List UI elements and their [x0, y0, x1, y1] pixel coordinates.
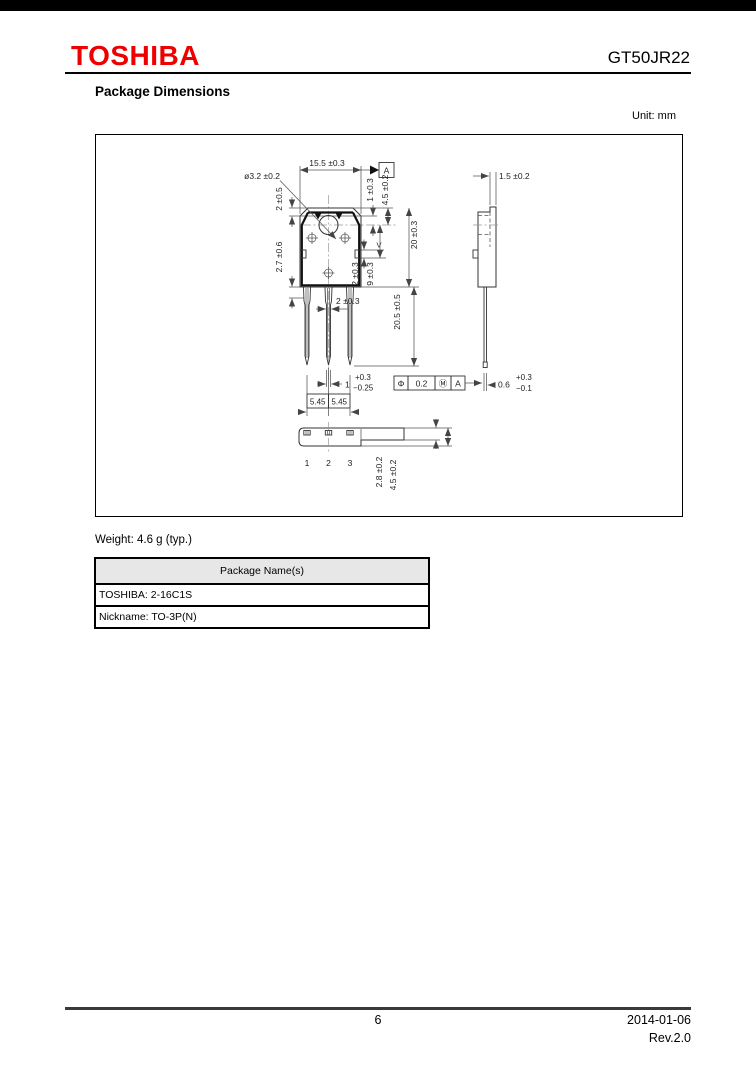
- pin-label-1: 1: [305, 458, 310, 468]
- weight-note: Weight: 4.6 g (typ.): [95, 534, 192, 546]
- side-view: 1.5 ±0.2 0.6 +0.3 −0.1: [473, 171, 532, 393]
- dimension-drawing-svg: 15.5 ±0.3 A ø3.2 ±0.2 2 ±0.5 2.7 ±0.6: [96, 135, 682, 516]
- tolerance-datum: A: [455, 379, 461, 389]
- datasheet-page: TOSHIBA GT50JR22 Package Dimensions Unit…: [0, 0, 756, 1077]
- package-name-table: Package Name(s) TOSHIBA: 2-16C1S Nicknam…: [94, 557, 430, 629]
- dim-overall-thickness: 4.5 ±0.2: [388, 459, 398, 490]
- dim-lead-tip-width: 0.6: [498, 380, 510, 390]
- dim-body-thickness: 2.8 ±0.2: [374, 456, 384, 487]
- dim-body-height: 20 ±0.3: [409, 221, 419, 250]
- position-tolerance-frame: Φ 0.2 Ⓜ A: [394, 376, 482, 390]
- unit-label: Unit: mm: [632, 110, 676, 122]
- dim-overall-width: 15.5 ±0.3: [309, 158, 345, 168]
- dim-tab-offset: 9 ±0.3: [365, 262, 375, 286]
- dim-pitch-left: 5.45: [310, 398, 326, 407]
- datum-a-flag: A: [384, 166, 390, 176]
- dim-step-offset: 1 ±0.3: [365, 178, 375, 202]
- tolerance-value: 0.2: [416, 379, 428, 389]
- package-outline-drawing: 15.5 ±0.3 A ø3.2 ±0.2 2 ±0.5 2.7 ±0.6: [95, 134, 683, 517]
- toshiba-logo: TOSHIBA: [71, 40, 200, 72]
- part-number: GT50JR22: [608, 48, 690, 68]
- dim-lead-tip-plus: +0.3: [516, 373, 532, 382]
- dim-tab-width: 2 ±0.3: [350, 262, 360, 286]
- package-table-header: Package Name(s): [95, 558, 429, 584]
- footer-date: 2014-01-06: [627, 1011, 691, 1029]
- dim-shoulder: 2.7 ±0.6: [274, 241, 284, 272]
- table-row-nickname: Nickname: TO-3P(N): [95, 606, 429, 628]
- footer-meta: 2014-01-06 Rev.2.0: [627, 1011, 691, 1047]
- pin-label-3: 3: [348, 458, 353, 468]
- front-view: 15.5 ±0.3 A ø3.2 ±0.2 2 ±0.5 2.7 ±0.6: [244, 158, 419, 416]
- dim-tab-thickness: 1.5 ±0.2: [499, 171, 530, 181]
- footer-revision: Rev.2.0: [627, 1029, 691, 1047]
- tolerance-modifier: Ⓜ: [439, 379, 448, 389]
- dim-lead-length: 20.5 ±0.5: [392, 294, 402, 330]
- dim-pitch-right: 5.45: [331, 398, 347, 407]
- dim-hole-diameter: ø3.2 ±0.2: [244, 171, 280, 181]
- dim-lead-width: 2 ±0.3: [336, 296, 360, 306]
- dim-top-step: 2 ±0.5: [274, 187, 284, 211]
- pin-label-2: 2: [326, 458, 331, 468]
- tolerance-symbol: Φ: [398, 379, 405, 389]
- section-title: Package Dimensions: [95, 84, 230, 99]
- dim-lead-thickness: 1: [345, 380, 350, 390]
- footer-divider: [65, 1007, 691, 1010]
- section-mark: V: [376, 241, 381, 250]
- dim-lead-thickness-plus: +0.3: [355, 373, 371, 382]
- header-divider: [65, 72, 691, 74]
- dim-lead-tip-minus: −0.1: [516, 384, 532, 393]
- table-row-toshiba-name: TOSHIBA: 2-16C1S: [95, 584, 429, 606]
- dim-lead-thickness-minus: −0.25: [353, 384, 374, 393]
- bottom-view: 2.8 ±0.2 4.5 ±0.2 1 2 3: [299, 419, 452, 490]
- page-top-bar: [0, 0, 756, 11]
- dim-hole-offset: 4.5 ±0.2: [380, 174, 390, 205]
